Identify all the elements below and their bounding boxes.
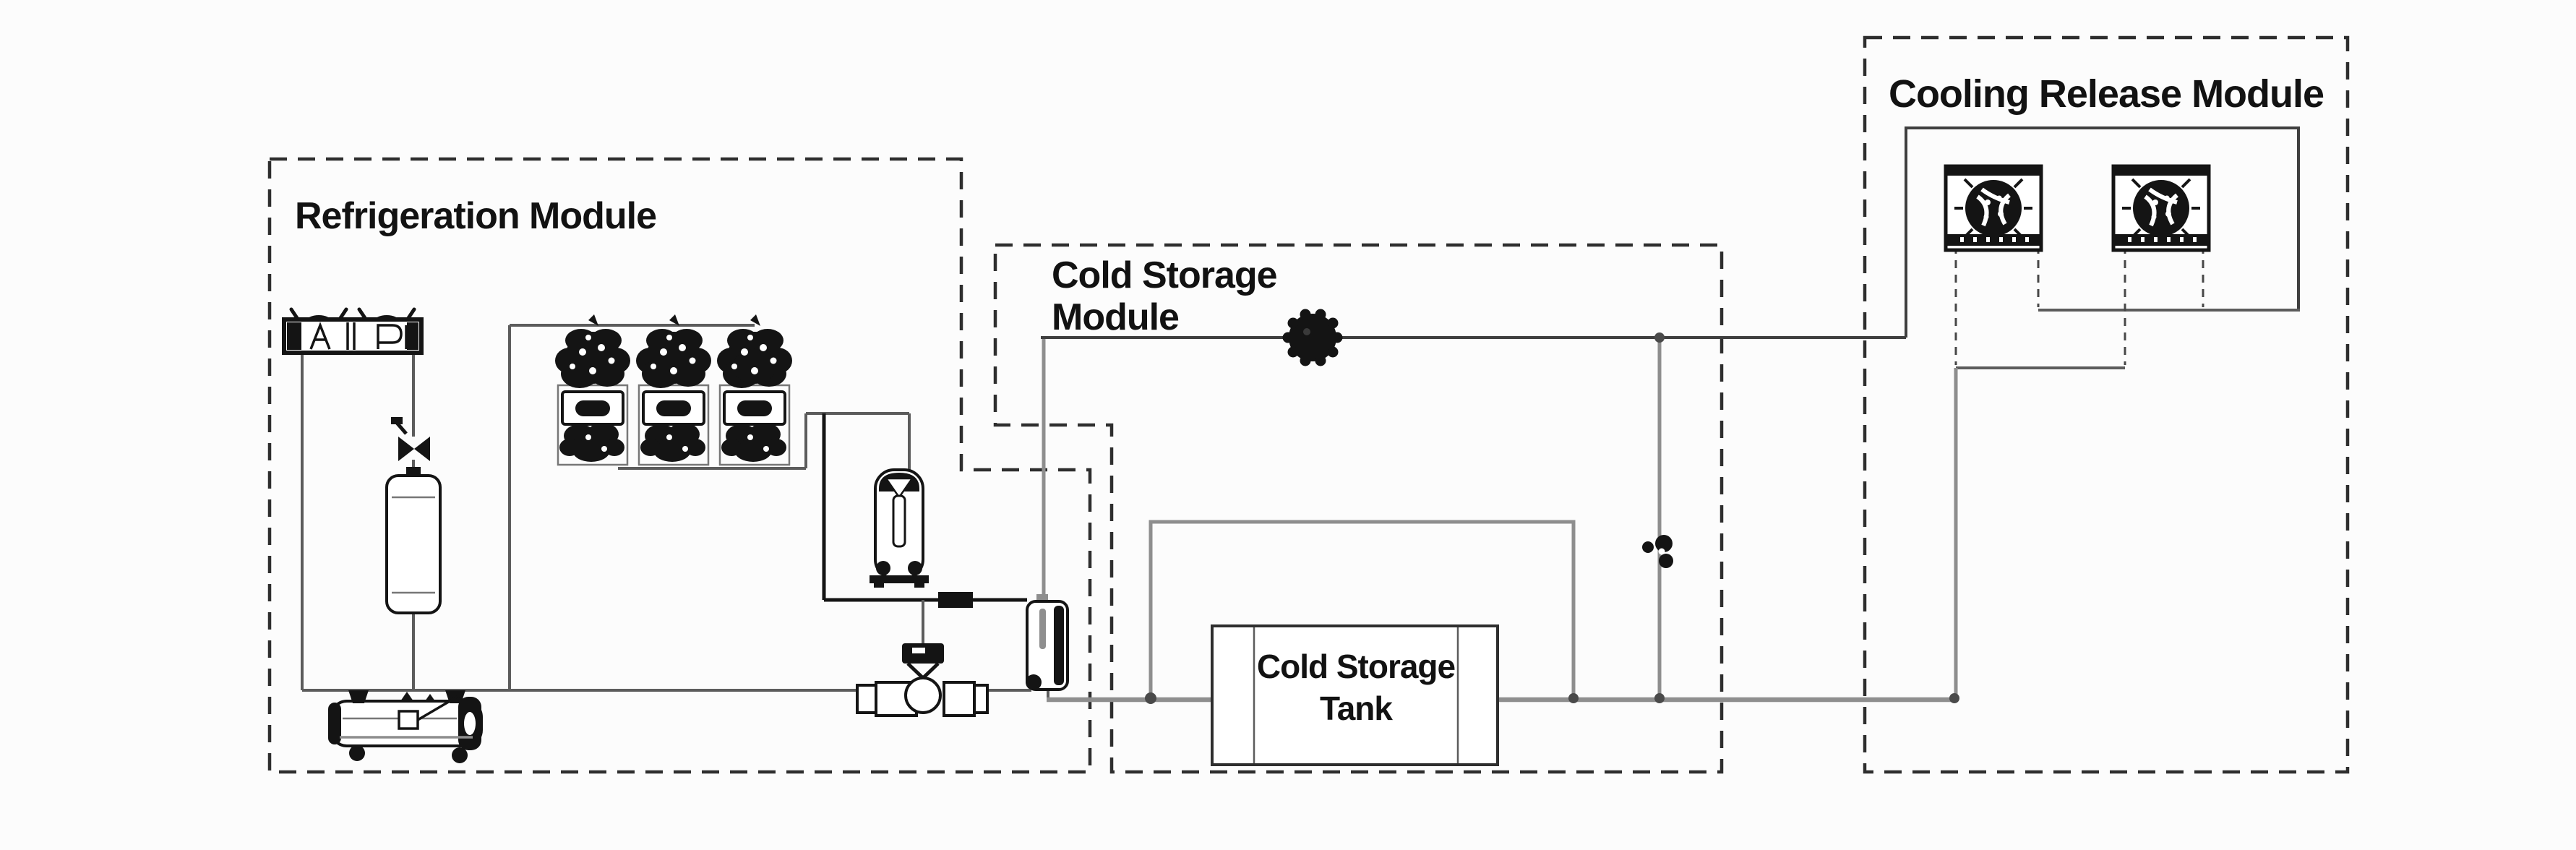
compressor-icon — [555, 314, 630, 465]
compressor-icon — [636, 314, 711, 465]
cooling-release-module-border — [1865, 38, 2348, 772]
shutoff-valve-icon — [391, 417, 430, 461]
refrigeration-module-title: Refrigeration Module — [295, 195, 656, 237]
air-cooler-fan-icon — [2113, 166, 2209, 250]
diagram-canvas: Refrigeration Module Cold Storage Module… — [0, 0, 2576, 850]
filter-drier-icon — [938, 592, 973, 608]
plate-evaporator-icon — [1026, 594, 1068, 690]
cold-storage-tank: Cold Storage Tank — [1212, 626, 1498, 765]
cold-storage-module-title-line1: Cold Storage — [1052, 254, 1277, 296]
tank-label-line2: Tank — [1320, 690, 1393, 727]
air-cooler-fans — [1946, 166, 2209, 250]
air-cooler-fan-icon — [1946, 166, 2041, 250]
cold-storage-module-title-line2: Module — [1052, 296, 1179, 338]
system-diagram: Refrigeration Module Cold Storage Module… — [0, 0, 2576, 850]
horizontal-receiver-icon — [328, 690, 481, 763]
oil-separator-icon — [870, 470, 929, 588]
cooling-release-module-title: Cooling Release Module — [1889, 72, 2324, 116]
air-cooled-condenser-icon — [284, 309, 421, 353]
compressor-rack — [555, 314, 792, 465]
expansion-valve-icon — [857, 643, 987, 716]
pump-icon — [1283, 309, 1343, 366]
vertical-receiver-icon — [387, 467, 440, 613]
compressor-icon — [717, 314, 792, 465]
tank-label-line1: Cold Storage — [1257, 648, 1456, 685]
